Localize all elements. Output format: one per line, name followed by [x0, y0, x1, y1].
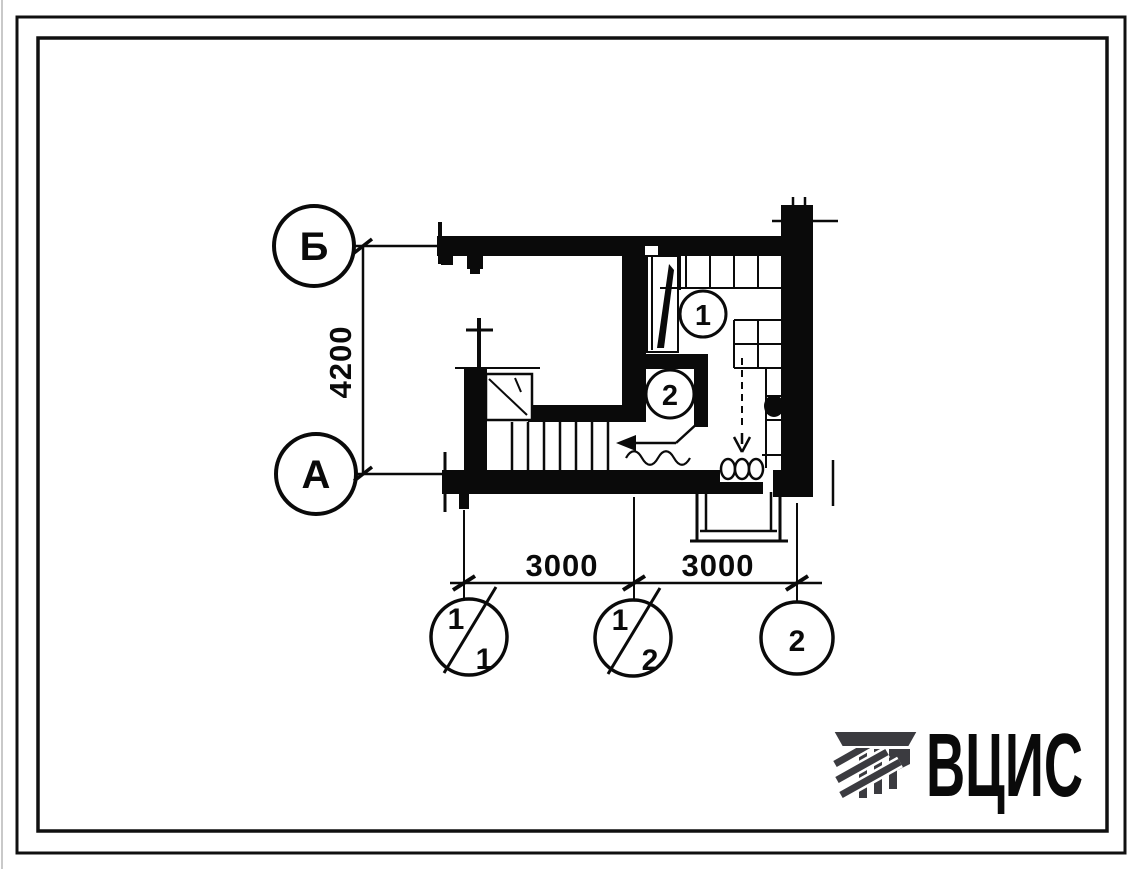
axis-1-1-denominator: 1 [476, 643, 493, 676]
room2-wall-stub-right [694, 369, 708, 427]
bottom-wall [442, 470, 720, 494]
axis-2-label: 2 [789, 625, 806, 658]
floor-plan-drawing: Б А 4200 [0, 0, 1139, 869]
top-wall-stub-3 [470, 267, 480, 274]
right-wall [781, 236, 813, 497]
dimension-value-right: 3000 [682, 548, 755, 583]
vertical-dimension-value: 4200 [323, 326, 358, 399]
axis-1-2-denominator: 2 [642, 644, 659, 677]
fixture-blob [764, 395, 784, 417]
doorway-sill [720, 482, 763, 494]
vent-shaft [647, 256, 678, 352]
logo-wordmark: ВЦИС [926, 716, 1083, 816]
axis-label-b: Б [300, 225, 329, 269]
top-wall-stub-1 [441, 256, 453, 265]
axis-1-1-numerator: 1 [448, 603, 465, 636]
basin-row [721, 459, 763, 479]
drawing-sheet: Б А 4200 [0, 0, 1139, 869]
top-wall-notch [645, 246, 658, 255]
room2-wall-stub-top [645, 354, 708, 369]
room2-number: 2 [662, 380, 678, 412]
interior-wall-horizontal [528, 405, 646, 422]
interior-wall-vertical [622, 256, 646, 422]
dimension-value-left: 3000 [526, 548, 599, 583]
axis-label-a: А [302, 453, 331, 497]
top-wall [437, 236, 813, 256]
room1-number: 1 [695, 300, 711, 332]
bottom-wall-stub [459, 494, 469, 509]
axis-1-2-numerator: 1 [612, 604, 629, 637]
